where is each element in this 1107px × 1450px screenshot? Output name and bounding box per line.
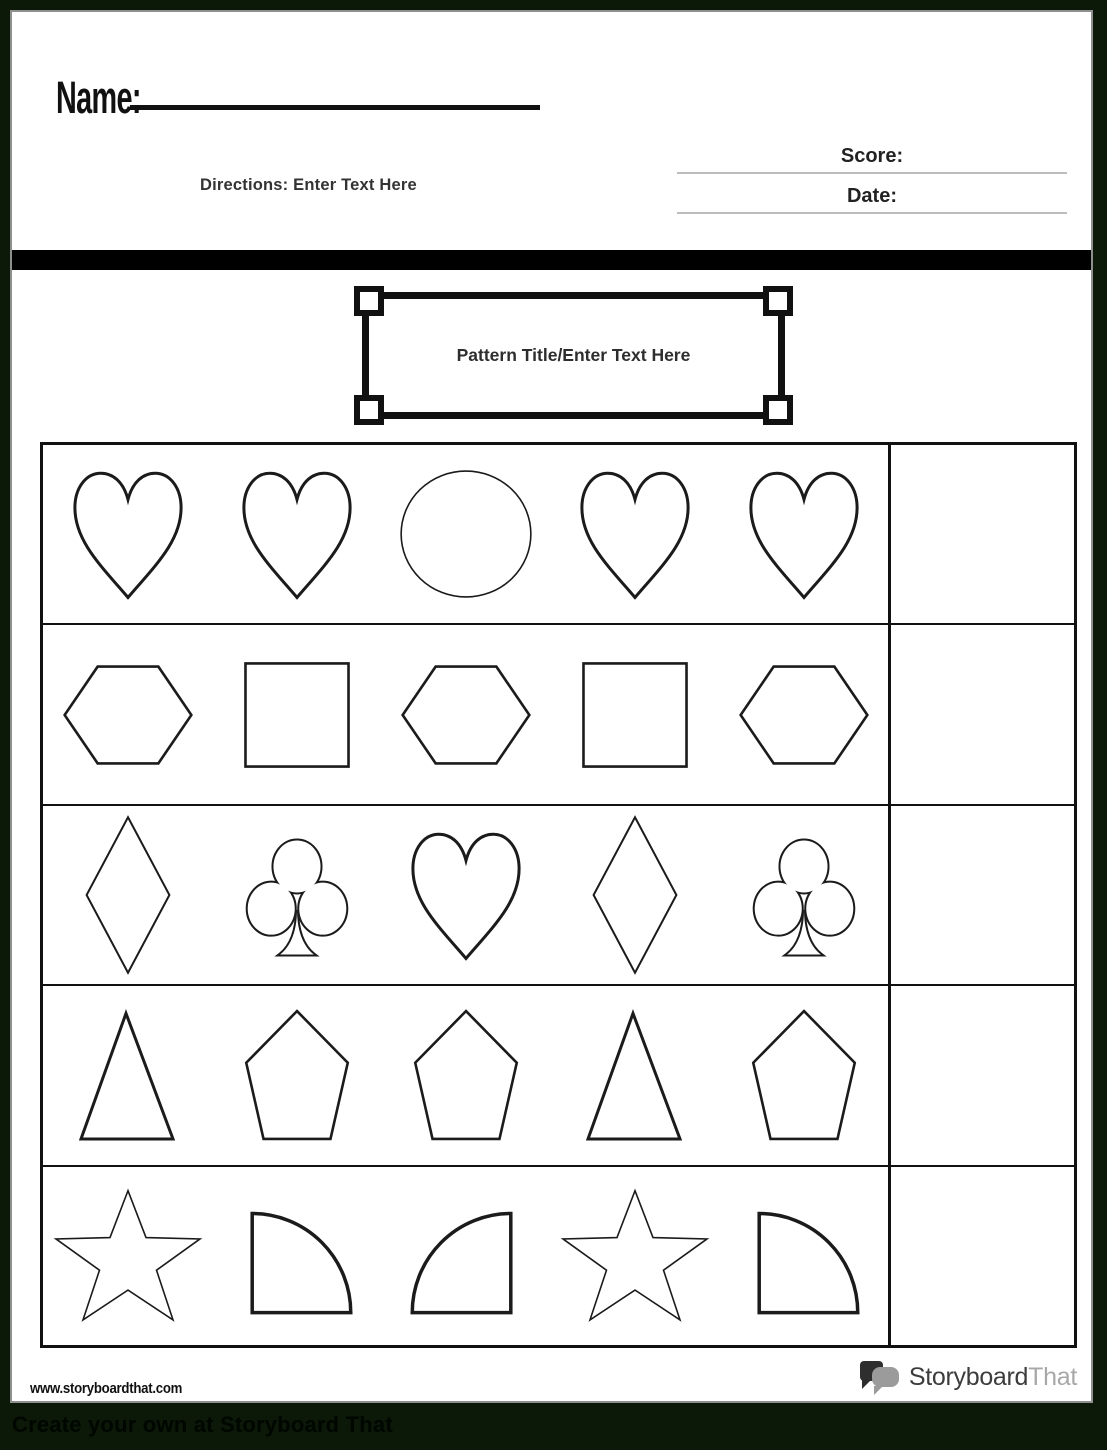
speech-bubbles-icon bbox=[859, 1356, 901, 1398]
date-label: Date: bbox=[677, 185, 1067, 208]
shape-cell-triangle bbox=[550, 986, 719, 1164]
shape-cell-square bbox=[550, 625, 719, 803]
shape-cell-star bbox=[43, 1167, 212, 1345]
directions-text: Directions: Enter Text Here bbox=[200, 176, 417, 195]
diamond-shape bbox=[589, 814, 681, 976]
shape-cell-heart bbox=[43, 445, 212, 623]
shape-cell-club bbox=[212, 806, 381, 984]
pattern-shapes bbox=[43, 806, 888, 984]
quarter-circle-shape bbox=[748, 1197, 860, 1315]
website-url: www.storyboardthat.com bbox=[30, 1380, 182, 1397]
hexagon-shape bbox=[400, 660, 532, 770]
pattern-grid bbox=[40, 442, 1077, 1348]
club-shape bbox=[241, 833, 353, 957]
pattern-row bbox=[43, 1167, 1074, 1345]
square-shape bbox=[579, 659, 691, 771]
shape-cell-star bbox=[550, 1167, 719, 1345]
answer-cell[interactable] bbox=[888, 445, 1074, 623]
quarter-circle-shape bbox=[241, 1197, 353, 1315]
pentagon-shape bbox=[243, 1007, 351, 1143]
answer-cell[interactable] bbox=[888, 986, 1074, 1164]
heart-shape bbox=[745, 465, 863, 603]
shape-cell-diamond bbox=[43, 806, 212, 984]
pattern-shapes bbox=[43, 986, 888, 1164]
name-label: Name: bbox=[56, 72, 141, 124]
square-shape bbox=[241, 659, 353, 771]
heart-shape bbox=[576, 465, 694, 603]
pattern-row bbox=[43, 986, 1074, 1166]
storyboardthat-logo: StoryboardThat bbox=[859, 1354, 1077, 1400]
shape-cell-pentagon bbox=[212, 986, 381, 1164]
triangle-shape bbox=[585, 1008, 685, 1143]
pattern-shapes bbox=[43, 445, 888, 623]
quarter-circle-flipped-shape bbox=[410, 1197, 522, 1315]
shape-cell-quarter-circle bbox=[719, 1167, 888, 1345]
diamond-shape bbox=[82, 814, 174, 976]
shape-cell-triangle bbox=[43, 986, 212, 1164]
section-divider-bar bbox=[12, 250, 1091, 270]
pattern-row bbox=[43, 625, 1074, 805]
shape-cell-heart bbox=[212, 445, 381, 623]
club-shape bbox=[748, 833, 860, 957]
score-fill-line[interactable] bbox=[677, 172, 1067, 174]
shape-cell-pentagon bbox=[381, 986, 550, 1164]
shape-cell-square bbox=[212, 625, 381, 803]
gray-bubble-icon bbox=[872, 1367, 899, 1387]
heart-shape bbox=[407, 826, 525, 964]
worksheet-canvas: { "header": { "name_label": "Name:", "di… bbox=[0, 0, 1107, 1450]
shape-cell-hexagon bbox=[381, 625, 550, 803]
name-fill-line[interactable] bbox=[130, 105, 540, 110]
shape-cell-quarter-circle bbox=[212, 1167, 381, 1345]
pattern-title-frame: Pattern Title/Enter Text Here bbox=[362, 292, 785, 419]
star-shape bbox=[53, 1185, 203, 1327]
hexagon-shape bbox=[62, 660, 194, 770]
pattern-row bbox=[43, 806, 1074, 986]
pattern-shapes bbox=[43, 625, 888, 803]
pattern-row bbox=[43, 445, 1074, 625]
pentagon-shape bbox=[412, 1007, 520, 1143]
date-fill-line[interactable] bbox=[677, 212, 1067, 214]
worksheet-page: Name: Directions: Enter Text Here Score:… bbox=[10, 10, 1093, 1403]
shape-cell-diamond bbox=[550, 806, 719, 984]
shape-cell-heart bbox=[550, 445, 719, 623]
footer-cta-text: Create your own at Storyboard That bbox=[12, 1412, 393, 1438]
pattern-shapes bbox=[43, 1167, 888, 1345]
shape-cell-quarter-circle-flipped bbox=[381, 1167, 550, 1345]
shape-cell-circle bbox=[381, 445, 550, 623]
logo-text-storyboard: Storyboard bbox=[909, 1363, 1028, 1391]
shape-cell-club bbox=[719, 806, 888, 984]
circle-shape bbox=[397, 467, 535, 601]
shape-cell-pentagon bbox=[719, 986, 888, 1164]
pentagon-shape bbox=[750, 1007, 858, 1143]
score-label: Score: bbox=[677, 145, 1067, 168]
shape-cell-hexagon bbox=[43, 625, 212, 803]
triangle-shape bbox=[78, 1008, 178, 1143]
heart-shape bbox=[69, 465, 187, 603]
pattern-title[interactable]: Pattern Title/Enter Text Here bbox=[369, 299, 778, 412]
star-shape bbox=[560, 1185, 710, 1327]
heart-shape bbox=[238, 465, 356, 603]
answer-cell[interactable] bbox=[888, 806, 1074, 984]
shape-cell-heart bbox=[719, 445, 888, 623]
logo-text-that: That bbox=[1028, 1363, 1077, 1391]
answer-cell[interactable] bbox=[888, 625, 1074, 803]
hexagon-shape bbox=[738, 660, 870, 770]
shape-cell-hexagon bbox=[719, 625, 888, 803]
answer-cell[interactable] bbox=[888, 1167, 1074, 1345]
logo-text: StoryboardThat bbox=[909, 1363, 1077, 1392]
shape-cell-heart bbox=[381, 806, 550, 984]
